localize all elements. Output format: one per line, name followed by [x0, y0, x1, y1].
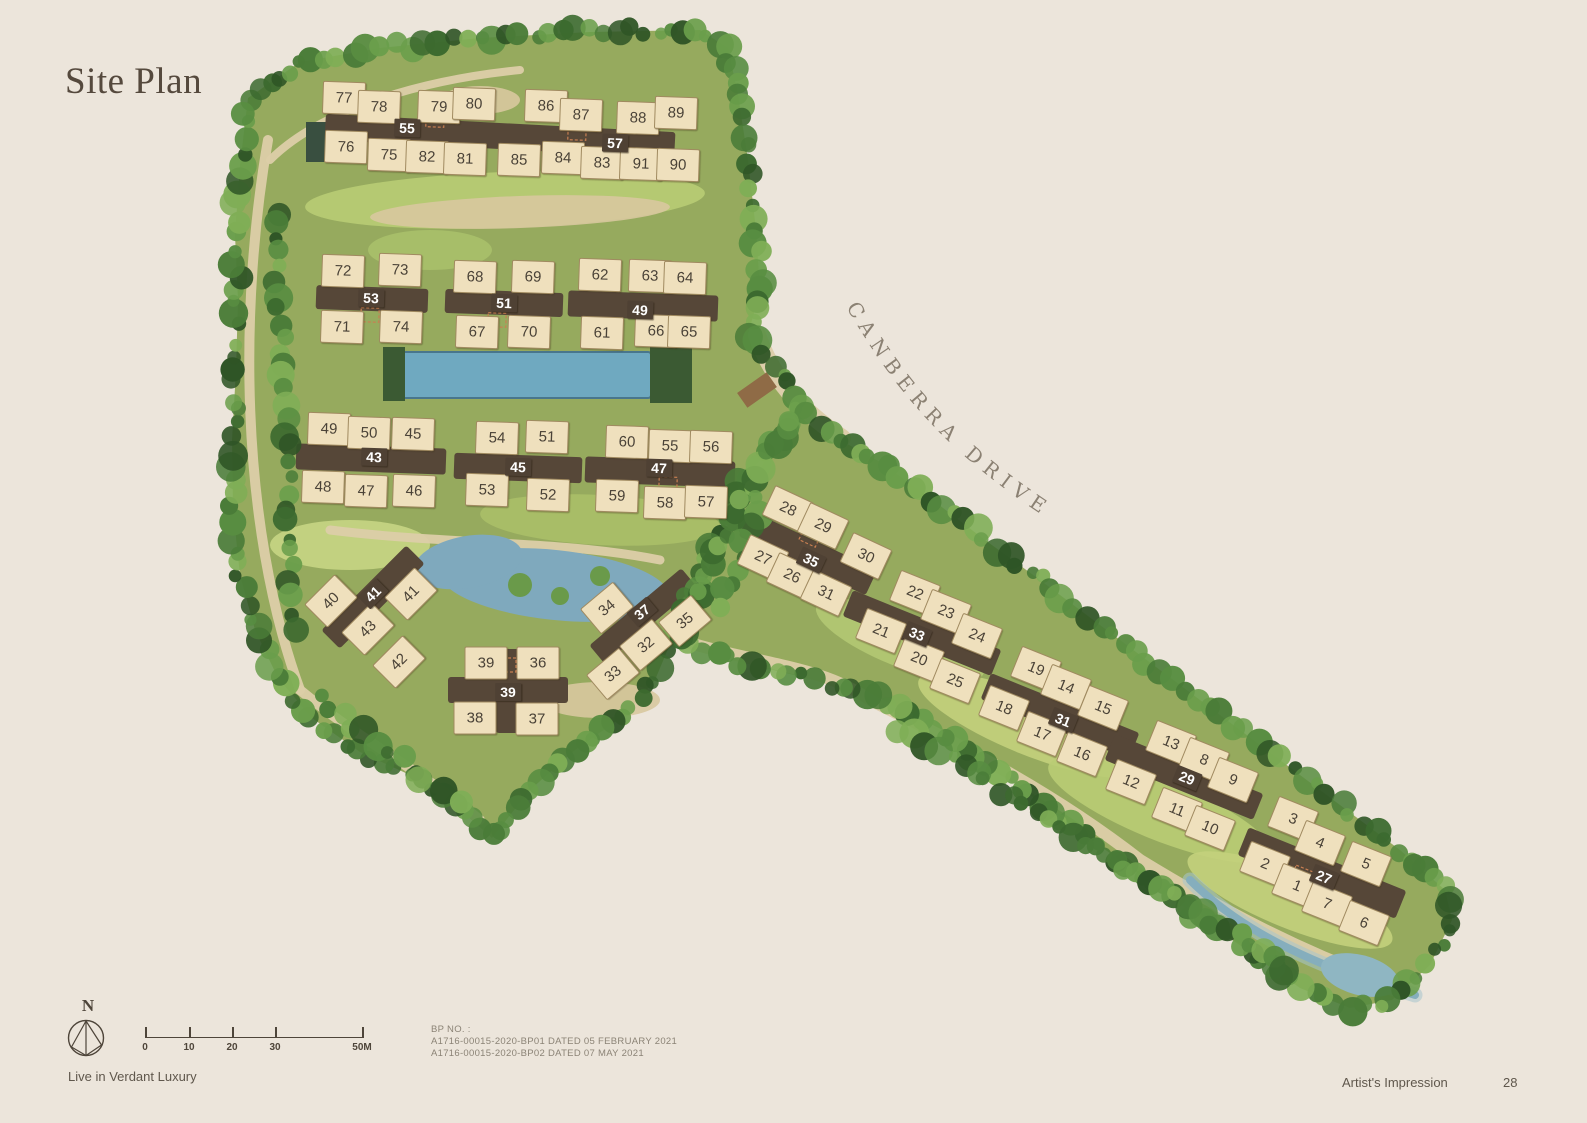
unit-label-80: 80: [452, 87, 496, 121]
unit-label-56: 56: [689, 430, 733, 464]
unit-label-16: 16: [1056, 731, 1108, 778]
scale-tick: [362, 1027, 364, 1038]
block-label-47: 47: [646, 459, 672, 478]
unit-label-73: 73: [378, 253, 422, 287]
unit-label-34: 34: [580, 582, 634, 635]
scale-bar: 010203050M: [145, 1024, 362, 1054]
unit-label-54: 54: [475, 421, 519, 455]
scale-tick: [145, 1027, 147, 1038]
unit-label-65: 65: [667, 315, 711, 349]
unit-label-57: 57: [684, 485, 728, 519]
block-label-43: 43: [361, 448, 387, 467]
unit-label-62: 62: [578, 258, 622, 292]
unit-label-51: 51: [525, 420, 569, 454]
tagline: Live in Verdant Luxury: [68, 1069, 197, 1084]
unit-label-40: 40: [304, 574, 358, 628]
scale-tick-label: 0: [142, 1042, 148, 1053]
block-label-55: 55: [394, 119, 420, 138]
unit-label-76: 76: [324, 130, 368, 164]
bp-line-2: A1716-00015-2020-BP02 DATED 07 MAY 2021: [431, 1048, 677, 1060]
block-label-51: 51: [491, 294, 517, 313]
unit-label-38: 38: [454, 702, 497, 735]
unit-label-89: 89: [654, 96, 698, 130]
unit-label-46: 46: [392, 474, 436, 508]
unit-label-43: 43: [341, 602, 395, 656]
unit-label-87: 87: [559, 98, 603, 132]
unit-label-12: 12: [1105, 759, 1157, 806]
unit-label-70: 70: [507, 315, 551, 349]
unit-label-85: 85: [497, 143, 541, 177]
scale-tick-label: 30: [269, 1042, 280, 1053]
block-label-39: 39: [495, 683, 521, 701]
unit-label-41: 41: [384, 567, 438, 621]
unit-label-45: 45: [391, 417, 435, 451]
building-markers: 7778798086878889767582818584839190727371…: [0, 0, 1587, 1123]
unit-label-71: 71: [320, 310, 364, 344]
bp-line-1: A1716-00015-2020-BP01 DATED 05 FEBRUARY …: [431, 1036, 677, 1048]
scale-tick-label: 50M: [352, 1042, 371, 1053]
unit-label-47: 47: [344, 474, 388, 508]
unit-label-68: 68: [453, 260, 497, 294]
artists-impression-note: Artist's Impression: [1342, 1075, 1448, 1090]
unit-label-69: 69: [511, 260, 555, 294]
block-label-41: 41: [358, 579, 389, 610]
block-label-53: 53: [358, 289, 384, 308]
unit-label-59: 59: [595, 479, 639, 513]
scale-tick-label: 20: [226, 1042, 237, 1053]
unit-label-36: 36: [517, 647, 560, 680]
unit-label-39: 39: [465, 647, 508, 680]
unit-label-58: 58: [643, 486, 687, 520]
unit-label-48: 48: [301, 470, 345, 504]
scale-bar-line: [145, 1037, 362, 1038]
unit-label-37: 37: [516, 703, 559, 736]
scale-tick-label: 10: [183, 1042, 194, 1053]
compass-icon: [58, 996, 118, 1066]
block-label-57: 57: [602, 134, 628, 153]
unit-label-74: 74: [379, 310, 423, 344]
unit-label-72: 72: [321, 254, 365, 288]
unit-label-61: 61: [580, 316, 624, 350]
unit-label-53: 53: [465, 473, 509, 507]
unit-label-52: 52: [526, 478, 570, 512]
unit-label-49: 49: [307, 412, 351, 446]
block-label-45: 45: [505, 458, 531, 477]
unit-label-60: 60: [605, 425, 649, 459]
scale-tick: [275, 1027, 277, 1038]
site-plan-page: CANBERRA DRIVE 7778798086878889767582818…: [0, 0, 1587, 1123]
unit-label-84: 84: [541, 141, 585, 175]
unit-label-67: 67: [455, 315, 499, 349]
unit-label-81: 81: [443, 142, 487, 176]
block-label-49: 49: [627, 301, 653, 320]
unit-label-30: 30: [840, 532, 893, 580]
scale-tick: [232, 1027, 234, 1038]
page-number: 28: [1503, 1075, 1517, 1090]
unit-label-90: 90: [656, 148, 700, 182]
bp-note: BP NO. : A1716-00015-2020-BP01 DATED 05 …: [431, 1024, 677, 1060]
north-compass: N: [58, 996, 118, 1066]
unit-label-50: 50: [347, 416, 391, 450]
scale-tick: [189, 1027, 191, 1038]
unit-label-64: 64: [663, 261, 707, 295]
page-title: Site Plan: [65, 60, 202, 103]
bp-heading: BP NO. :: [431, 1024, 677, 1036]
unit-label-5: 5: [1340, 841, 1392, 888]
unit-label-42: 42: [372, 635, 426, 689]
